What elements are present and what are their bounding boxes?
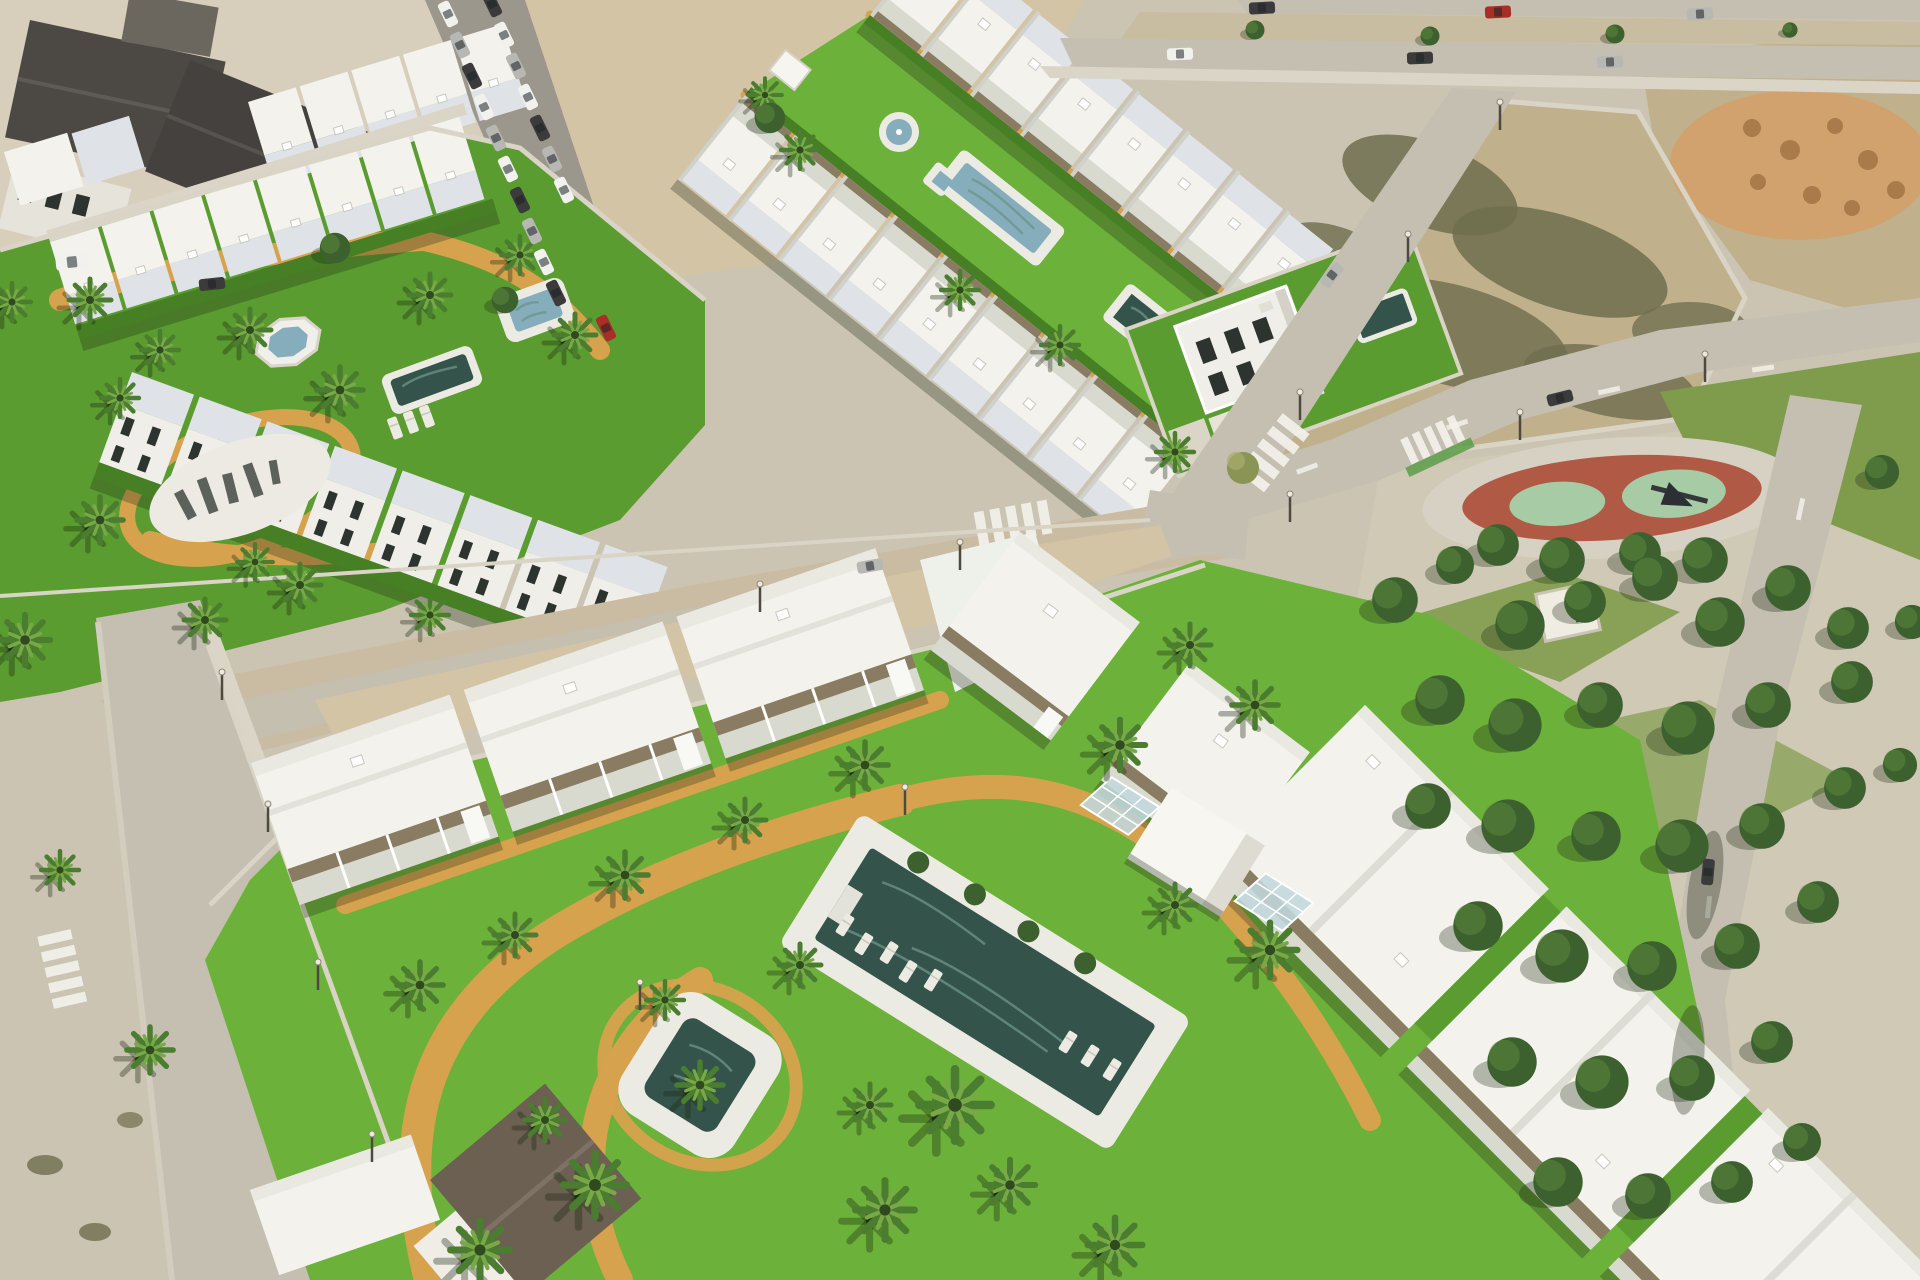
aerial-render bbox=[0, 0, 1920, 1280]
car-icon bbox=[1597, 56, 1623, 69]
car-icon bbox=[1249, 1, 1276, 14]
round-fountain bbox=[879, 112, 919, 152]
car-icon bbox=[1701, 859, 1715, 886]
screenshot-root bbox=[0, 0, 1920, 1280]
car-icon bbox=[1167, 48, 1193, 61]
car-icon bbox=[1485, 5, 1512, 18]
car-icon bbox=[1407, 52, 1433, 65]
autumn-tree bbox=[1227, 452, 1259, 484]
car-icon bbox=[1687, 7, 1714, 20]
sand-mound bbox=[1670, 90, 1920, 240]
